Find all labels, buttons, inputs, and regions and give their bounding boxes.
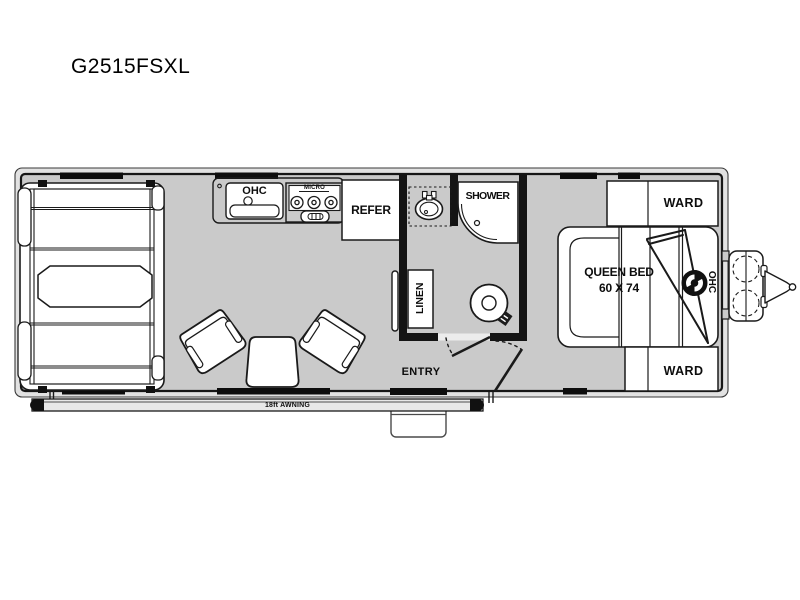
- side-table: [246, 337, 298, 387]
- label-kitchen-ohc: OHC: [226, 186, 283, 197]
- floorplan-drawing: [0, 0, 800, 600]
- window-top-4: [618, 173, 640, 180]
- window-top-3: [560, 173, 597, 180]
- floorplan-page: G2515FSXL OHC MICRO REFER SHOWER LINEN Q…: [0, 0, 800, 600]
- label-ward-bottom: WARD: [649, 365, 718, 378]
- window-bottom-2: [217, 388, 330, 395]
- label-shower: SHOWER: [457, 191, 518, 202]
- label-ward-top: WARD: [649, 197, 718, 210]
- window-bottom-3: [563, 388, 587, 395]
- label-queen-bed: QUEEN BED: [560, 266, 678, 278]
- hitch: [722, 251, 796, 321]
- label-linen: LINEN: [415, 278, 426, 318]
- label-entry: ENTRY: [392, 367, 450, 378]
- label-awning: 18ft AWNING: [190, 402, 385, 409]
- tv: [392, 271, 398, 331]
- tongue-coupler: [765, 271, 791, 303]
- entry-door-bar: [390, 388, 447, 395]
- label-refer: REFER: [342, 204, 400, 216]
- fan-icon: [682, 270, 708, 296]
- label-micro: MICRO: [289, 185, 340, 191]
- model-title: G2515FSXL: [71, 56, 190, 77]
- label-queen-bed-size: 60 X 74: [560, 282, 678, 294]
- label-bedroom-ohc: OHC: [706, 269, 716, 295]
- window-top-1: [60, 173, 123, 180]
- bed-cushion: [38, 266, 152, 307]
- garage-bed: [18, 180, 164, 393]
